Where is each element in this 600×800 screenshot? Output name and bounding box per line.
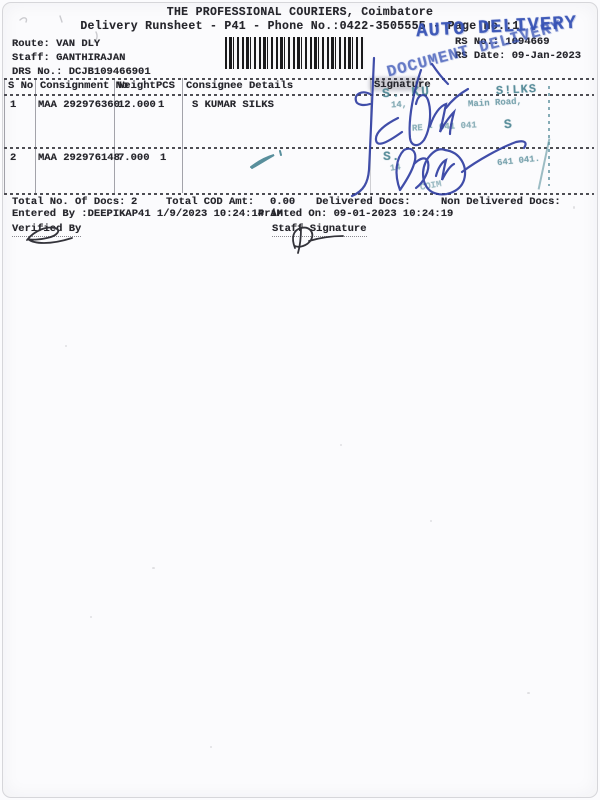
consignee-stamp-city: RE - 641 041	[412, 120, 477, 133]
scan-speck	[340, 444, 342, 446]
scan-speck	[65, 345, 67, 347]
row2-signature	[397, 141, 526, 194]
printed-on-line: Printed On: 09-01-2023 10:24:19	[258, 208, 453, 220]
header-consignment-no: Consignment No	[40, 80, 128, 92]
table-row-separator	[4, 147, 594, 149]
staff-line: Staff: GANTHIRAJAN	[12, 52, 125, 64]
table-col-line-2	[114, 78, 115, 193]
header-consignee: Consignee Details	[186, 80, 293, 92]
consignee-stamp-addr-right: Main Road,	[468, 97, 522, 110]
table-col-line-1	[35, 78, 36, 193]
consignee-stamp-addr-left: 14,	[391, 100, 408, 111]
scan-speck	[152, 567, 155, 569]
staff-value: GANTHIRAJAN	[56, 52, 125, 64]
scanned-delivery-runsheet: THE PROFESSIONAL COURIERS, Coimbatore De…	[0, 0, 600, 800]
cell-consignee: S KUMAR SILKS	[192, 99, 274, 111]
total-cod-value: 0.00	[270, 196, 295, 208]
staff-label: Staff:	[12, 52, 50, 64]
cell-pcs: 1	[158, 99, 164, 111]
table-border-left	[4, 78, 5, 193]
rs-date-value: 09-Jan-2023	[512, 50, 581, 62]
scan-speck	[210, 746, 212, 748]
route-label: Route:	[12, 38, 50, 50]
scan-speck	[573, 206, 575, 209]
consignee-stamp2-city: COIM	[419, 179, 442, 193]
consignee-stamp-suffix: S	[503, 117, 512, 133]
scan-speck	[527, 692, 530, 694]
entered-by-line: Entered By :DEEPIKAP41 1/9/2023 10:24:14…	[12, 208, 283, 220]
scan-speck	[90, 616, 92, 618]
consignee-stamp-name-right: S!LKS	[496, 82, 538, 98]
cell-consignment-no: MAA 292976148	[38, 152, 120, 164]
route-line: Route: VAN DLY	[12, 38, 100, 50]
cell-consignment-no: MAA 292976360	[38, 99, 120, 111]
table-col-line-4	[370, 78, 371, 193]
consignee-stamp2-number: 14	[389, 162, 401, 173]
stamp-box-edge-dashed	[548, 86, 550, 186]
non-delivered-docs-label: Non Delivered Docs:	[441, 196, 561, 208]
drs-line: DRS No.: DCJB109466901	[12, 66, 151, 78]
route-value: VAN DLY	[56, 38, 100, 50]
consignee-stamp2-pincode: 641 041.	[497, 154, 541, 168]
header-weight: Weight	[118, 80, 156, 92]
drs-value: DCJB109466901	[69, 66, 151, 78]
cell-weight: 7.000	[118, 152, 150, 164]
total-cod-label: Total COD Amt:	[166, 196, 254, 208]
consignee-check-mark	[251, 151, 281, 168]
scan-speck	[430, 520, 432, 522]
staff-signature-label: Staff Signature	[272, 223, 367, 237]
verified-by-label: Verified By	[12, 223, 81, 237]
cell-weight: 12.000	[118, 99, 156, 111]
delivered-docs-label: Delivered Docs:	[316, 196, 411, 208]
cell-s-no: 1	[10, 99, 16, 111]
drs-label: DRS No.:	[12, 66, 62, 78]
header-pcs: PCS	[156, 80, 175, 92]
cell-pcs: 1	[160, 152, 166, 164]
barcode	[225, 37, 365, 69]
table-bottom-border	[4, 193, 594, 195]
total-docs-label: Total No. Of Docs:	[12, 196, 125, 208]
total-docs-value: 2	[131, 196, 137, 208]
cell-s-no: 2	[10, 152, 16, 164]
table-col-line-3	[182, 78, 183, 193]
header-s-no: S No	[8, 80, 33, 92]
